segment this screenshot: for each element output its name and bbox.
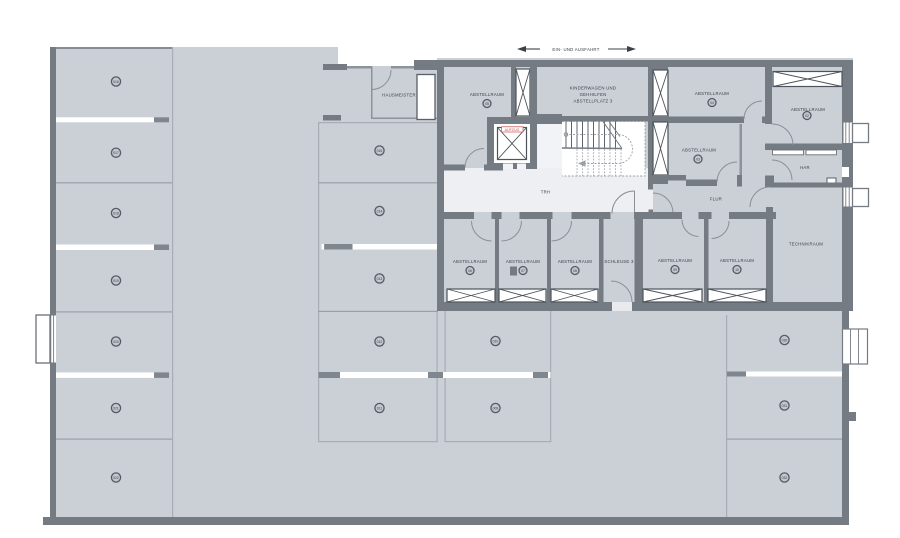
svg-text:020: 020 [113,340,119,344]
svg-text:012: 012 [377,340,383,344]
svg-text:ABSTELLRAUM: ABSTELLRAUM [658,258,692,263]
svg-text:FLUR: FLUR [710,197,722,202]
svg-text:010: 010 [493,340,499,344]
svg-text:ABSTELLRAUM: ABSTELLRAUM [506,259,540,264]
svg-text:05: 05 [485,102,489,106]
svg-text:021: 021 [113,407,119,411]
svg-text:ABSTELLRAUM: ABSTELLRAUM [720,258,754,263]
svg-text:KINDERWAGEN UND: KINDERWAGEN UND [570,85,616,90]
svg-text:031: 031 [782,404,788,408]
svg-text:02: 02 [805,114,809,118]
svg-text:TECHNIKRAUM: TECHNIKRAUM [789,242,823,247]
svg-text:ABSTELLRAUM: ABSTELLRAUM [453,259,487,264]
svg-text:TRH: TRH [541,190,551,195]
svg-text:018: 018 [113,212,119,216]
svg-text:016: 016 [113,80,119,84]
svg-text:011: 011 [377,407,383,411]
svg-text:019: 019 [113,279,119,283]
svg-text:022: 022 [113,476,119,480]
svg-text:06: 06 [468,269,472,273]
svg-text:ABSTELLRAUM: ABSTELLRAUM [470,92,504,97]
svg-text:009: 009 [493,407,499,411]
svg-text:ABSTELLRAUM: ABSTELLRAUM [682,148,716,153]
svg-text:EIN- UND AUSFAHRT: EIN- UND AUSFAHRT [552,47,599,52]
svg-text:03: 03 [696,158,700,162]
svg-text:08: 08 [573,269,577,273]
svg-text:014: 014 [377,210,383,214]
svg-text:GEHHILFEN: GEHHILFEN [580,92,607,97]
svg-text:10: 10 [735,268,739,272]
svg-text:ABSTELLRAUM: ABSTELLRAUM [695,91,729,96]
svg-text:07: 07 [521,269,525,273]
svg-text:04: 04 [710,101,714,105]
svg-text:ABSTELLRAUM: ABSTELLRAUM [558,259,592,264]
svg-text:09: 09 [673,268,677,272]
svg-text:HAUSMEISTER: HAUSMEISTER [382,93,416,98]
svg-text:AUFZUG: AUFZUG [505,128,520,132]
svg-text:032: 032 [782,476,788,480]
svg-text:ABSTELLPLATZ 3: ABSTELLPLATZ 3 [573,98,612,103]
svg-text:030: 030 [782,339,788,343]
svg-text:SCHLEUSE 3: SCHLEUSE 3 [604,259,634,264]
svg-text:013: 013 [377,277,383,281]
svg-text:017: 017 [113,151,119,155]
svg-text:HAR: HAR [800,165,810,170]
svg-text:015: 015 [377,149,383,153]
